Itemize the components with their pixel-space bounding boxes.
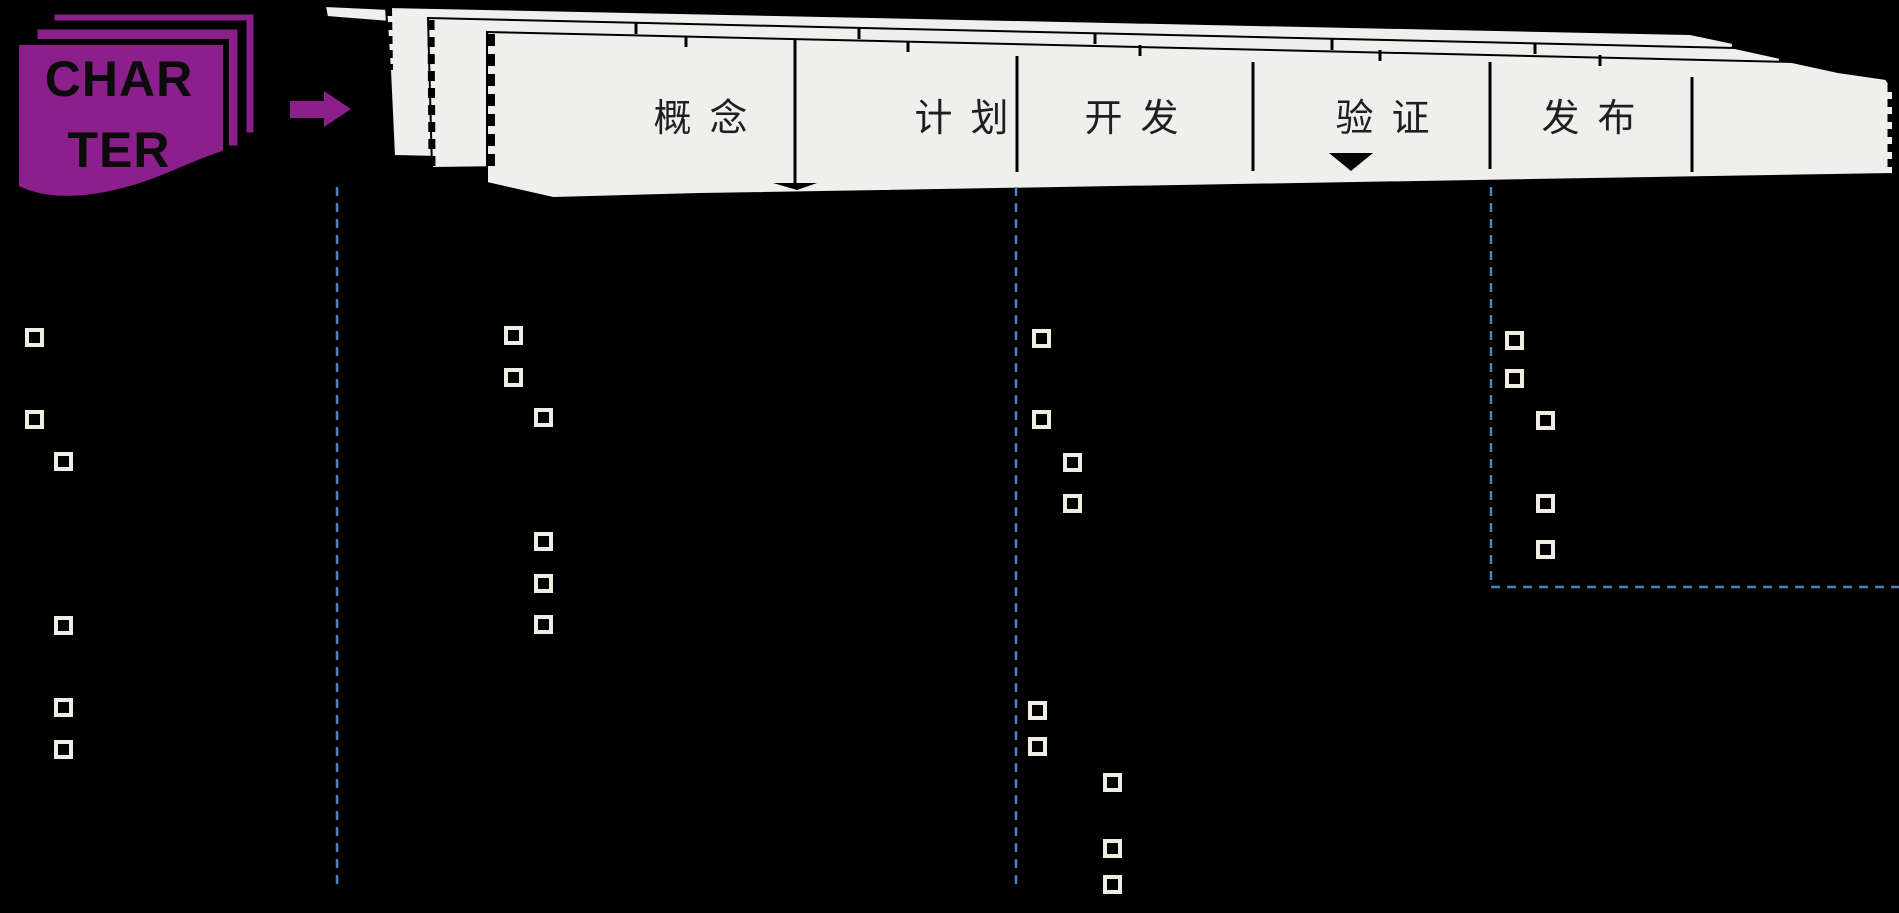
bullet-square-icon xyxy=(534,408,553,427)
bullet-square-icon xyxy=(1032,410,1051,429)
bullet-square-icon xyxy=(534,615,553,634)
bullet-square-icon xyxy=(1063,453,1082,472)
bullet-square-icon xyxy=(54,740,73,759)
bullet-square-icon xyxy=(1505,369,1524,388)
bullet-square-icon xyxy=(1536,494,1555,513)
bullet-square-icon xyxy=(54,698,73,717)
bullet-square-icon xyxy=(25,328,44,347)
bullet-square-icon xyxy=(1103,839,1122,858)
bullet-square-icon xyxy=(54,452,73,471)
bullet-square-icon xyxy=(504,326,523,345)
bullet-square-icon xyxy=(1103,875,1122,894)
bullet-columns xyxy=(0,0,1899,913)
bullet-square-icon xyxy=(1103,773,1122,792)
bullet-square-icon xyxy=(1536,540,1555,559)
bullet-square-icon xyxy=(1505,331,1524,350)
bullet-square-icon xyxy=(1028,737,1047,756)
bullet-square-icon xyxy=(54,616,73,635)
bullet-square-icon xyxy=(534,532,553,551)
bullet-square-icon xyxy=(534,574,553,593)
bullet-square-icon xyxy=(1063,494,1082,513)
bullet-square-icon xyxy=(1028,701,1047,720)
bullet-square-icon xyxy=(1536,411,1555,430)
bullet-square-icon xyxy=(504,368,523,387)
bullet-square-icon xyxy=(25,410,44,429)
bullet-square-icon xyxy=(1032,329,1051,348)
slide-canvas: CHAR TER xyxy=(0,0,1899,913)
